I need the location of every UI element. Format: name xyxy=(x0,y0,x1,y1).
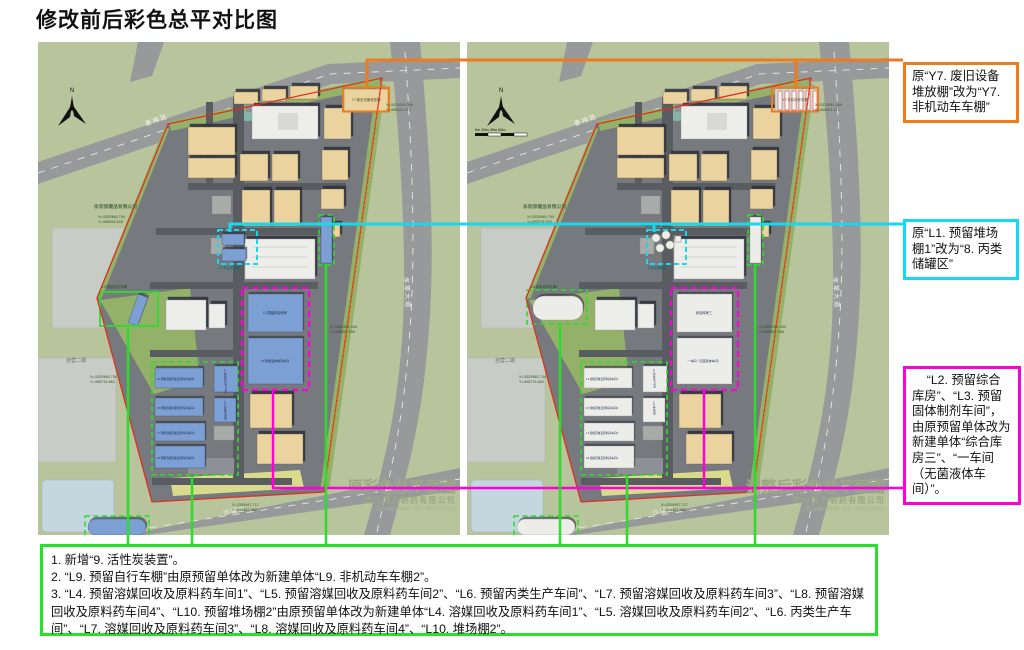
plan-project: 国为高端药物制剂一期及二期建设工程项目 xyxy=(805,505,885,512)
l3-label: 一车间（无菌液体车间） xyxy=(687,358,720,363)
l7-label: L7.溶媒回收及原料药车间3 xyxy=(586,431,619,435)
coord-label: X=3321051.349 xyxy=(386,103,413,107)
coord-label: Y=495867.387 xyxy=(232,508,257,512)
plan-company: 四川国为制药有限公司 xyxy=(364,495,456,505)
l9-label: L9.非机动车车棚2 xyxy=(531,284,558,289)
l7-label: L7.预留溶媒回收及原料药车间3 xyxy=(157,431,195,435)
coord-label: Y=495713.862 xyxy=(90,380,115,384)
neighbor-area-label: 自营二期 xyxy=(495,357,515,364)
note-line-1: 1. 新增“9. 活性炭装置”。 xyxy=(51,552,867,569)
l10-label: L10.堆场棚2 xyxy=(652,401,657,416)
coord-label: Y=495857.456 xyxy=(759,330,784,334)
callout-l2-l3-text: “L2. 预留综合库房”、“L3. 预留固体制剂车间”，由原预留单体改为新建单体… xyxy=(912,373,1012,498)
site-plan-original: N 春梅路 本草大道 沙堰街 永欣保健品有限公司 自营二期 X=3321051.… xyxy=(38,42,460,535)
l3-label: L3.预留固体制剂车间 xyxy=(261,358,289,363)
carbon-unit-label: 9.活性炭装置 xyxy=(643,222,661,227)
coord-label: X=3320947.717 xyxy=(661,503,688,507)
y7-label: Y7.非机动车车棚 xyxy=(782,97,808,102)
plan-company: 四川国为制药有限公司 xyxy=(793,495,885,505)
l4-label: L4.预留溶媒回收及原料药车间1 xyxy=(157,377,195,381)
page-title: 修改前后彩色总平对比图 xyxy=(36,4,278,34)
site-plan-adjusted-svg: N 0m 20m 40m 60m 春梅路 本草大道 沙堰街 永欣保健品有限公司 … xyxy=(467,42,889,535)
scale-label: 0m 20m 40m 60m xyxy=(475,128,506,132)
site-plan-original-svg: N 春梅路 本草大道 沙堰街 永欣保健品有限公司 自营二期 X=3321051.… xyxy=(38,42,460,535)
coord-label: X=3321051.349 xyxy=(815,103,842,107)
comparison-sheet: 修改前后彩色总平对比图 xyxy=(0,0,1024,650)
neighbor-company-label: 永欣保健品有限公司 xyxy=(93,203,137,210)
neighbor-area-label: 自营二期 xyxy=(66,357,86,364)
note-line-2: 2. “L9. 预留自行车棚”由原预留单体改为新建单体“L9. 非机动车车棚2”… xyxy=(51,569,867,586)
l10-label: L10.预留堆场棚2 xyxy=(223,401,228,421)
coord-label: Y=495713.862 xyxy=(519,380,544,384)
coord-label: X=3320951.494 xyxy=(759,325,786,329)
north-label: N xyxy=(499,88,503,94)
l2-label: 综合库房三 xyxy=(696,310,712,315)
plan-title: 调整后彩色总平面图 xyxy=(745,477,885,496)
coord-label: Y=495021.271 xyxy=(386,108,411,112)
coord-label: Y=495024.543 xyxy=(527,220,552,224)
l1-label: L1.预留堆场棚1 xyxy=(219,265,241,270)
l6-label: L6.丙类生产车间 xyxy=(652,369,657,389)
y7-label: Y7.废旧设备堆放棚 xyxy=(352,97,381,102)
l8-label: L8.预留溶媒回收及原料药车间4 xyxy=(157,456,195,460)
l5-label: L5.预留溶媒回收及原料药车间2 xyxy=(157,406,195,410)
plan-title: 原彩色总平面图 xyxy=(347,477,456,496)
neighbor-company-label: 永欣保健品有限公司 xyxy=(522,203,566,210)
notes-box: 1. 新增“9. 活性炭装置”。 2. “L9. 预留自行车棚”由原预留单体改为… xyxy=(40,544,878,636)
coord-label: Y=495021.271 xyxy=(815,108,840,112)
l4-label: L4.溶媒回收及原料药车间1 xyxy=(586,377,619,381)
callout-y7-text: 原“Y7. 废旧设备堆放棚”改为“Y7. 非机动车车棚” xyxy=(912,69,1000,114)
coord-label: X=3320951.494 xyxy=(330,325,357,329)
coord-label: Y=495857.456 xyxy=(330,330,355,334)
coord-label: X=3320965.794 xyxy=(527,215,554,219)
plan-project: 国为高端药物制剂一期及二期建设工程项目 xyxy=(376,505,456,512)
coord-label: X=3320965.734 xyxy=(519,375,546,379)
north-label: N xyxy=(70,88,74,94)
l5-label: L5.溶媒回收及原料药车间2 xyxy=(586,406,619,410)
l8-label: L8.溶媒回收及原料药车间4 xyxy=(586,456,619,460)
callout-l1-change: 原“L1. 预留堆场棚1”改为“8. 丙类储罐区” xyxy=(903,219,1019,280)
callout-l2-l3-change: “L2. 预留综合库房”、“L3. 预留固体制剂车间”，由原预留单体改为新建单体… xyxy=(903,366,1021,505)
site-plan-adjusted: N 0m 20m 40m 60m 春梅路 本草大道 沙堰街 永欣保健品有限公司 … xyxy=(467,42,889,535)
tank-area-label: 8.丙类储罐区 xyxy=(648,265,667,270)
coord-label: X=3320965.794 xyxy=(98,215,125,219)
callout-y7-change: 原“Y7. 废旧设备堆放棚”改为“Y7. 非机动车车棚” xyxy=(903,62,1019,123)
l9-label: L9.预留自行车棚 xyxy=(102,284,128,289)
coord-label: Y=495867.387 xyxy=(661,508,686,512)
coord-label: Y=495024.543 xyxy=(98,220,123,224)
coord-label: X=3320947.717 xyxy=(232,503,259,507)
callout-l1-text: 原“L1. 预留堆场棚1”改为“8. 丙类储罐区” xyxy=(912,226,1002,271)
note-line-3: 3. “L4. 预留溶媒回收及原料药车间1”、“L5. 预留溶媒回收及原料药车间… xyxy=(51,586,867,638)
l2-label: L2.预留综合库房 xyxy=(263,310,287,315)
coord-label: X=3320965.734 xyxy=(90,375,117,379)
